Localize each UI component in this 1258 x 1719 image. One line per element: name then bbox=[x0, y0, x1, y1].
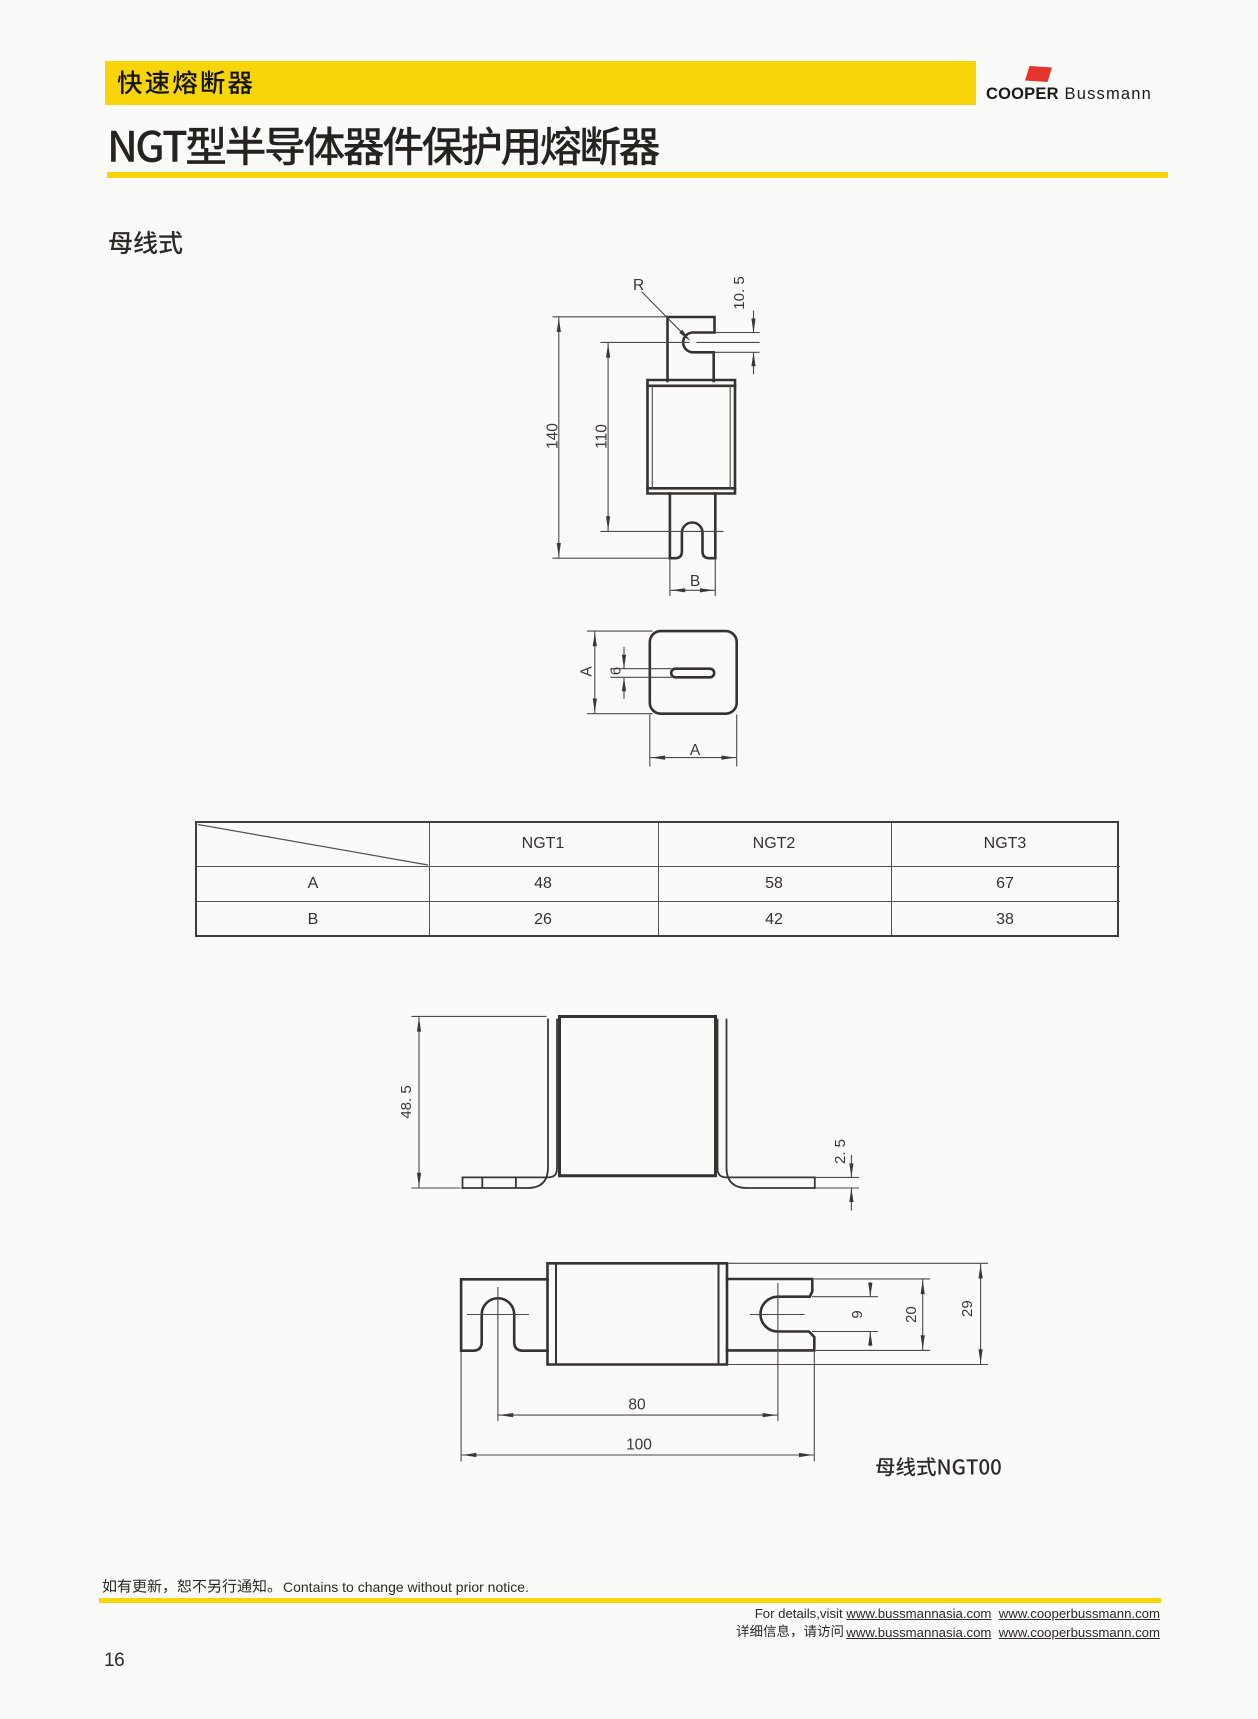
svg-text:9: 9 bbox=[849, 1310, 866, 1318]
svg-text:A: A bbox=[690, 742, 701, 759]
svg-text:10. 5: 10. 5 bbox=[731, 276, 748, 309]
svg-text:80: 80 bbox=[628, 1397, 646, 1414]
svg-text:48. 5: 48. 5 bbox=[398, 1085, 415, 1118]
svg-text:6: 6 bbox=[608, 667, 625, 675]
svg-text:29: 29 bbox=[959, 1300, 976, 1317]
svg-text:2. 5: 2. 5 bbox=[832, 1139, 849, 1164]
svg-text:140: 140 bbox=[544, 423, 561, 449]
svg-text:110: 110 bbox=[594, 424, 611, 449]
svg-text:B: B bbox=[690, 573, 700, 590]
svg-text:20: 20 bbox=[903, 1306, 920, 1323]
svg-text:R: R bbox=[633, 277, 644, 294]
svg-text:100: 100 bbox=[626, 1437, 652, 1454]
svg-text:A: A bbox=[579, 666, 596, 677]
